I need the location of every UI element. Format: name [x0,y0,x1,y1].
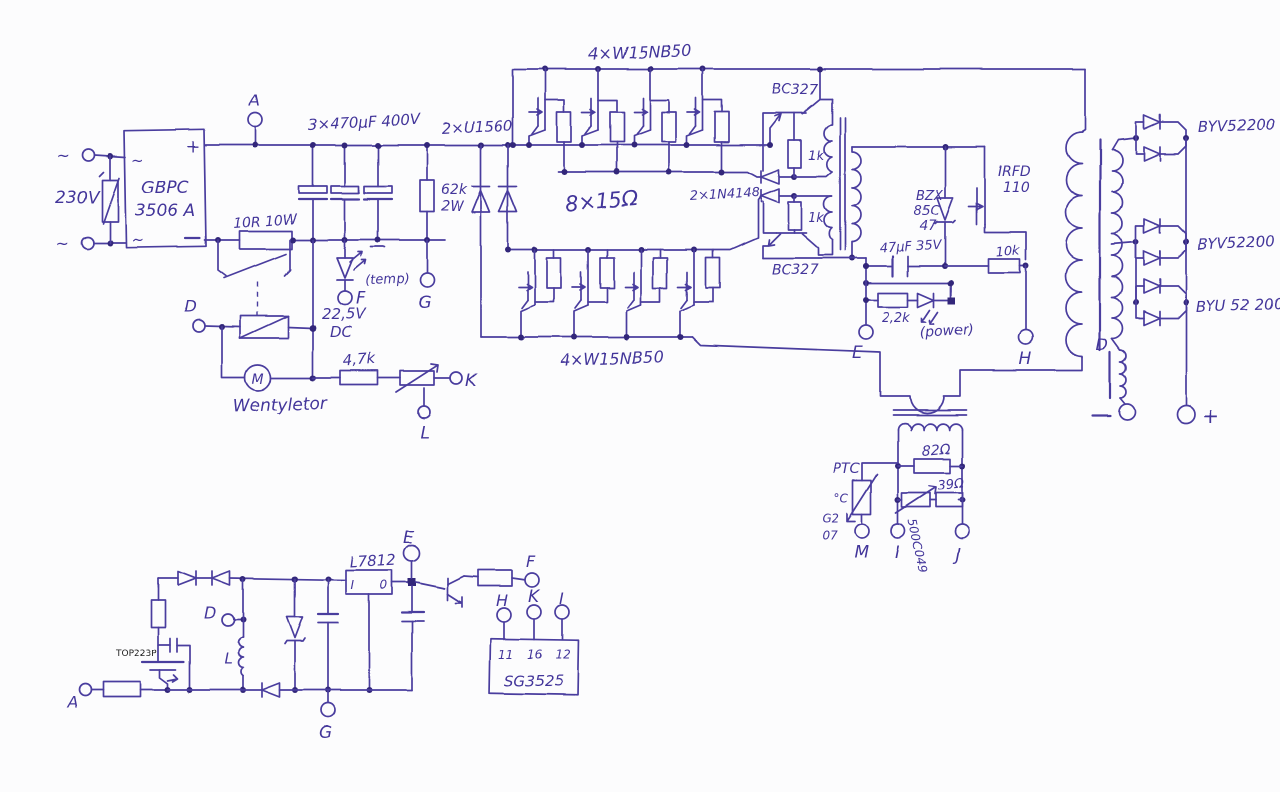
snubber-cap: 47µF 35V [863,238,948,276]
sg3525-pin11: 11 [498,648,513,662]
terminal-m [855,524,869,538]
fan-trimmer: K L [396,364,478,443]
scanned-schematic-page: ~ ~ 230V GBPC 3506 A ~ ~ + A 3×470 [0,0,1280,792]
output-plus-label: + [1202,404,1220,428]
rectifier-label-2: BYV52200 [1197,232,1275,254]
bleeder-power: 2W [441,199,465,215]
clamp-block: BZX 85C 47 IRFD 110 47µF 35V 10k [852,144,1033,369]
aux-cap [318,579,338,693]
r-10k-label: 10k [995,243,1021,260]
secondary-tap-mid [1112,242,1136,244]
main-transformer [1066,69,1136,357]
terminal-h-label: H [1019,349,1032,369]
top223p-label: TOP223P [115,649,157,659]
terminal-k [450,372,462,384]
aux-f-branch: F [464,552,539,587]
power-led-label: (power) [919,321,974,341]
bc327-upper-resistor: 1k [808,149,824,164]
bulk-caps-label: 3×470µF 400V [307,110,422,134]
sg3525-pin12: 12 [555,648,570,662]
ac-phase-label: ~ [56,146,69,165]
rectifier-label-3: BYU 52 200 [1196,295,1280,316]
dc-bus: A 3×470µF 400V 10R 10W [205,91,770,337]
mains-voltage-label: 230V [55,188,100,208]
fan-motor-letter: M [252,372,264,388]
bc327-upper-label: BC327 [772,82,818,98]
terminal-aux-d [222,614,234,626]
bc327-lower-resistor: 1k [808,211,824,226]
mosfet-cell [526,66,571,175]
terminal-a-label: A [248,91,260,110]
bulk-capacitor [299,142,327,243]
fan-name: Wentyletor [232,394,328,417]
gate-pulldown: 10k H [945,243,1033,369]
irfd-label-2: 110 [1003,180,1030,196]
wire [1082,69,1085,132]
mosfet-cell [631,66,676,175]
terminal-e-label: E [852,343,863,363]
rectifier-pair [1133,115,1189,161]
terminal-output-plus [1177,405,1195,423]
terminal-aux-f [525,573,539,587]
ac-neutral-label: ~ [56,234,69,253]
sg3525-label: SG3525 [504,672,563,690]
terminal-f [338,291,352,305]
mosfet-cell [684,66,729,175]
rectifier-label-1: BYV52200 [1198,115,1276,136]
bc327-lower-label: BC327 [772,262,818,278]
terminal-aux-g [321,703,335,717]
bleeder-value: 62k [441,182,468,198]
ac-input: ~ ~ 230V [55,146,125,253]
aux-d-branch: D L [204,579,246,693]
terminal-h [1019,330,1033,344]
temp-led: F (temp) [337,240,410,309]
top223p-switcher: TOP223P [115,578,193,693]
bottom-mosfet-bank: 4×W15NB50 [481,196,761,370]
terminal-d [193,320,205,332]
terminal-aux-e-label: E [403,528,414,548]
l7812-label: L7812 [349,551,396,571]
bleeder-resistor: 62k 2W G [418,142,468,313]
terminal-i-label: I [895,543,900,563]
ptc-code-1: G2 [822,511,839,525]
sg3525-pwm: SG3525 11 16 12 H K I [490,587,579,695]
terminal-l-label: L [420,423,429,443]
l7812-in-mark: I [351,578,355,592]
bottom-bank-label: 4×W15NB50 [560,347,664,370]
primary-winding [1066,132,1082,357]
boost-diodes-label: 2×U1560 [441,116,513,138]
aux-bottom-rail: G [168,683,412,743]
e-branch: E [852,258,873,363]
ct-load-resistor: 82Ω [898,442,962,473]
ac-terminal-n [82,237,94,249]
boost-diodes: 2×U1560 [441,116,517,337]
ptc-degc: °C [834,491,849,505]
bridge-ac2: ~ [131,231,144,249]
terminal-m-label: M [854,543,869,563]
temp-led-label: (temp) [365,271,410,289]
zener-label-2: 85C [914,204,941,219]
terminal-aux-a-label: A [66,693,78,712]
irfd-label-1: IRFD [998,164,1031,180]
ptc-label: PTC [833,461,860,477]
terminal-aux-i-label: I [559,589,564,608]
terminal-aux-k [527,605,541,619]
aux-supply: A TOP223P D [66,528,578,743]
fan-resistor-value: 4,7k [342,350,377,370]
bridge-ac1: ~ [131,151,144,169]
bulk-capacitor [331,142,359,243]
bc327-lower: BC327 1k [763,196,832,278]
r-2k2-label: 2,2k [882,311,911,326]
mosfet-cell [624,247,667,340]
snubber-cap-label: 47µF 35V [879,238,943,256]
inrush-resistor: 10R 10W [215,212,299,249]
relay-voltage: 22,5V [322,305,367,323]
bridge-rectifier: GBPC 3506 A ~ ~ + [124,129,206,249]
terminal-g [420,273,434,287]
drive-diode [761,189,797,203]
terminal-output-minus [1119,404,1135,420]
bc327-upper: BC327 1k [763,66,832,177]
zener-label-3: 47 [920,219,937,234]
trimmer-part-label: 500C049 [905,518,930,574]
terminal-i [891,524,905,538]
aux-inductor-label: L [224,650,232,668]
terminal-aux-f-label: F [526,552,536,571]
r-82-label: 82Ω [921,442,951,460]
schematic-canvas: ~ ~ 230V GBPC 3506 A ~ ~ + A 3×470 [0,0,1280,792]
terminal-aux-h [497,608,511,622]
relay-fan-section: D 22,5V DC M Wentyletor 4,7k K L [184,240,478,443]
output-choke: D [1092,335,1135,420]
rectifier-pair [1133,279,1189,325]
aux-top-rail [158,571,346,585]
top-mosfet-bank: 4×W15NB50 8×15Ω [510,41,1085,216]
varistor [99,153,119,246]
bridge-name-line1: GBPC [142,178,189,198]
bridge-name-line2: 3506 A [135,201,195,221]
terminal-l [418,406,430,418]
sg3525-pin16: 16 [527,648,543,662]
gate-resistors-label: 8×15Ω [564,186,640,216]
terminal-g-label: G [418,293,431,313]
gate-drive-transformer [820,99,861,261]
drive-diodes-label: 2×1N4148 [689,185,760,204]
mosfet-cell [677,247,720,340]
secondary-tap-top [1112,138,1136,150]
r-39-label: 39Ω [937,476,965,494]
inrush-resistor-label: 10R 10W [233,212,299,232]
fan-resistor: 4,7k [313,350,400,385]
ptc-code-2: 07 [822,528,838,542]
rectifier-pair [1133,219,1189,265]
terminal-j-label: J [953,545,961,565]
ct-winding [898,424,962,430]
power-led-row: 2,2k (power) [866,293,974,341]
terminal-aux-h-label: H [496,591,508,610]
terminal-j [955,524,969,538]
top-bank-label: 4×W15NB50 [588,41,692,64]
terminal-aux-g-label: G [319,723,332,743]
irfd110-mosfet: IRFD 110 [969,147,1031,260]
mosfet-cell [571,247,614,340]
terminal-aux-d-label: D [204,603,216,622]
relay-voltage-dc: DC [330,323,353,341]
drive-diode [761,170,797,184]
aux-output-node: E [402,528,424,690]
zener-label-1: BZX [916,189,944,204]
terminal-a [248,113,262,127]
aux-zener [285,579,305,693]
l7812-out-mark: 0 [380,578,388,592]
relay-contact [218,240,290,278]
ac-terminal-l [82,149,94,161]
bridge-plus: + [186,137,200,157]
current-transformer-block: 82Ω 39Ω 500C049 PTC °C G2 07 M I J [692,337,1082,574]
terminal-e [859,325,873,339]
l7812-regulator: L7812 I 0 [346,551,408,693]
aux-input-resistor [103,682,140,697]
terminal-k-label: K [465,371,478,391]
terminal-aux-a [79,684,91,696]
ct-trimmer-row: 39Ω 500C049 [896,476,965,573]
aux-transistor [416,576,464,607]
mosfet-cell [518,247,561,340]
choke-label: D [1096,335,1108,354]
terminal-d-label: D [184,297,196,316]
gate-drive-rail-top [558,172,761,177]
mosfet-cell [579,66,624,175]
bulk-capacitor [364,142,392,247]
terminal-aux-k-label: K [528,587,541,607]
